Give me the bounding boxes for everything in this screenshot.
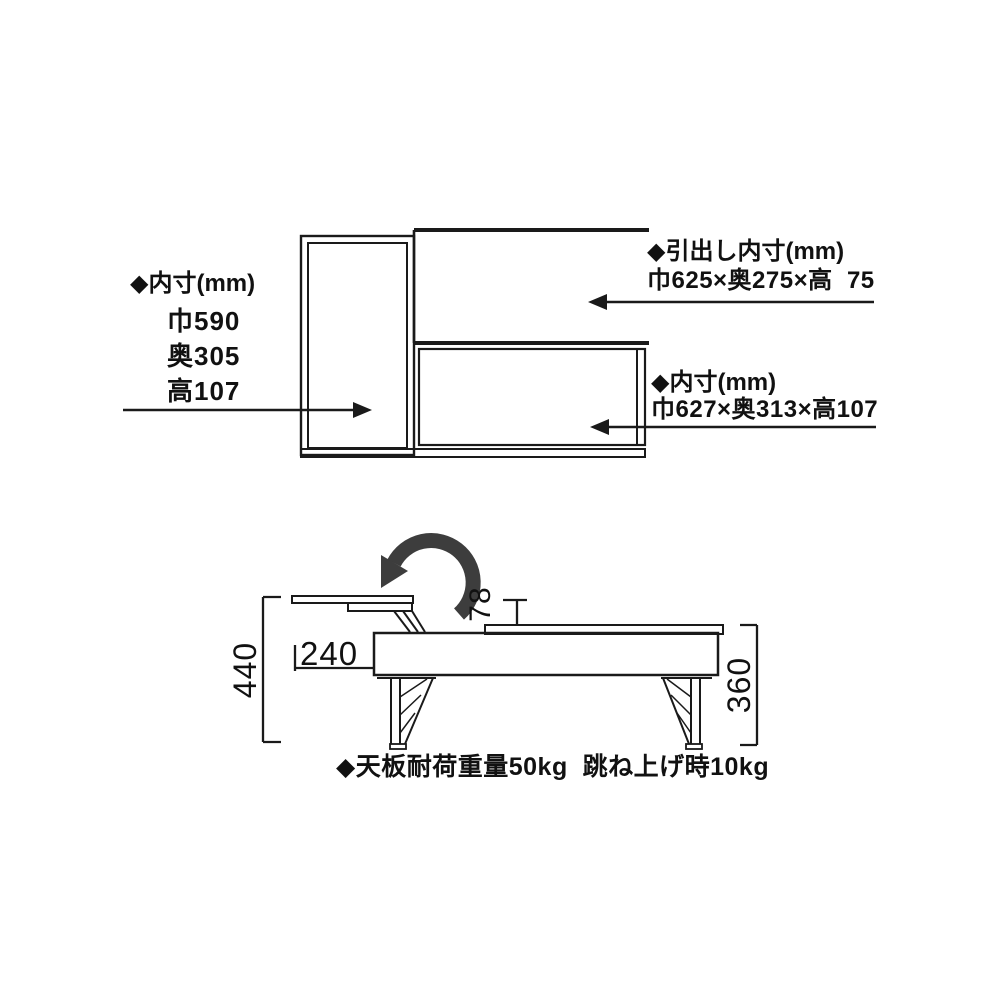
arrow-left-compartment [123,402,372,418]
load-capacity-caption: ◆天板耐荷重量50kg 跳ね上げ時10kg [336,755,769,780]
lower-inner-dims-title: ◆内寸(mm) [651,371,776,395]
inner-dims-depth: 奥305 [167,343,240,369]
drawer-dims-title: ◆引出し内寸(mm) [647,240,844,264]
lower-inner-dims-values: 巾627×奥313×高107 [651,398,878,422]
furniture-dimension-diagram: ◆内寸(mm) 巾590 奥305 高107 ◆引出し内寸(mm) 巾625×奥… [0,0,1000,1000]
dim-360-label: 360 [719,645,759,725]
left-leg [377,678,436,749]
dim-440-label: 440 [225,630,265,710]
cabinet-front-view [301,230,649,457]
diagram-linework [0,0,1000,1000]
dim-78-line [503,600,527,625]
drawer-dims-values: 巾625×奥275×高 75 [647,269,875,293]
dim-440-line [263,597,281,742]
dim-240-label: 240 [300,634,380,664]
inner-dims-title: ◆内寸(mm) [130,272,255,296]
dim-78-label: 78 [464,574,498,634]
inner-dims-width: 巾590 [167,308,240,334]
right-leg [661,678,712,749]
arrow-drawer [588,294,874,310]
inner-dims-height: 高107 [167,378,240,404]
